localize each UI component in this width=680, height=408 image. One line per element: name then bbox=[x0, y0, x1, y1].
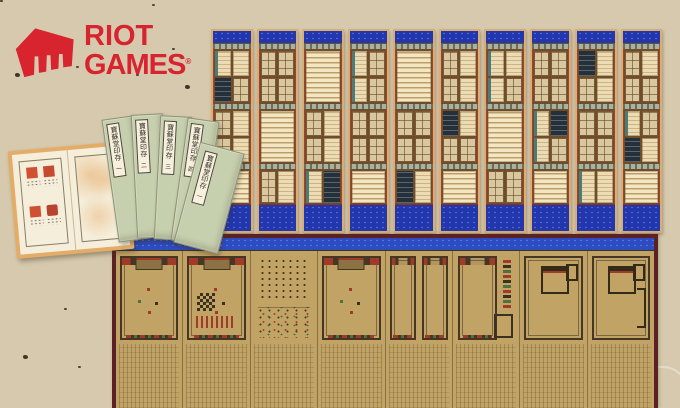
shelf-section bbox=[625, 110, 659, 163]
palace-hall-plan bbox=[322, 256, 380, 340]
book-stack bbox=[233, 51, 249, 76]
screen-panel bbox=[530, 29, 572, 233]
bookshelf bbox=[395, 43, 433, 204]
screen-panel bbox=[439, 29, 481, 233]
bookshelf bbox=[350, 43, 388, 204]
dark-books bbox=[551, 111, 567, 136]
plan-panel bbox=[116, 251, 183, 408]
shelf-valance bbox=[577, 44, 615, 49]
shelf-valance bbox=[532, 164, 570, 169]
shelf-valance bbox=[441, 104, 479, 109]
book-stack bbox=[460, 51, 476, 76]
lattice-door bbox=[460, 138, 476, 163]
shelf-section bbox=[397, 170, 431, 204]
shelf-valance bbox=[395, 164, 433, 169]
title-slip-text: 寶蘇堂印存 bbox=[137, 122, 148, 157]
book-stack bbox=[324, 138, 340, 163]
plan-mark bbox=[349, 288, 352, 291]
shelf-valance bbox=[441, 164, 479, 169]
panel-blue-band-top bbox=[213, 31, 251, 43]
lattice-door bbox=[369, 51, 385, 76]
shelf-valance bbox=[213, 104, 251, 109]
book-stack bbox=[597, 171, 613, 203]
roof-band bbox=[460, 258, 495, 265]
name-list-text bbox=[456, 344, 516, 408]
plan-diagram bbox=[187, 256, 245, 340]
shelf-valance bbox=[577, 164, 615, 169]
book-stack bbox=[233, 111, 249, 136]
plan-mark bbox=[222, 302, 225, 305]
book-pile bbox=[352, 171, 386, 203]
screen-panel bbox=[575, 29, 617, 233]
wall-detail bbox=[637, 288, 646, 327]
plan-mark bbox=[147, 288, 150, 291]
bookshelf bbox=[577, 43, 615, 204]
shelf-section bbox=[306, 50, 340, 103]
bookshelf bbox=[259, 43, 297, 204]
screen-panel bbox=[348, 29, 390, 233]
red-text-rows bbox=[196, 316, 235, 327]
volume-mark: 二 bbox=[141, 160, 147, 169]
shelf-valance bbox=[623, 44, 661, 49]
riot-games-wordmark: RIOT GAMES® bbox=[84, 24, 191, 78]
shelf-valance bbox=[259, 164, 297, 169]
book-pile bbox=[625, 171, 659, 203]
book-stack bbox=[352, 51, 368, 76]
book-stack bbox=[642, 51, 658, 76]
lattice-door bbox=[369, 111, 385, 136]
volume-mark: 三 bbox=[165, 162, 171, 171]
panel-blue-band-bottom bbox=[532, 204, 570, 231]
shelf-section bbox=[261, 110, 295, 163]
panel-blue-band-top bbox=[304, 31, 342, 43]
lattice-door bbox=[443, 78, 459, 103]
lattice-door bbox=[551, 138, 567, 163]
lattice-door bbox=[397, 111, 413, 136]
book-stack bbox=[460, 111, 476, 136]
gate bbox=[338, 257, 365, 270]
book-stack bbox=[597, 51, 613, 76]
shelf-section bbox=[443, 110, 477, 163]
panel-blue-band-top bbox=[350, 31, 388, 43]
plan-mark bbox=[215, 311, 218, 314]
building bbox=[608, 266, 636, 294]
panel-blue-band-bottom bbox=[304, 204, 342, 231]
shelf-valance bbox=[213, 44, 251, 49]
screen-panels bbox=[116, 251, 654, 408]
panel-blue-band-top bbox=[532, 31, 570, 43]
seal-stamp bbox=[43, 201, 64, 241]
plan-panel bbox=[318, 251, 385, 408]
plan-panel bbox=[386, 251, 453, 408]
shelf-section bbox=[397, 110, 431, 163]
courtyard-plan bbox=[524, 256, 582, 340]
lattice-door bbox=[261, 78, 277, 103]
lattice-door bbox=[369, 78, 385, 103]
shelf-section bbox=[261, 50, 295, 103]
name-list-text bbox=[591, 344, 651, 408]
bookshelf bbox=[304, 43, 342, 204]
book-stack bbox=[306, 171, 322, 203]
courtyard-plan bbox=[592, 256, 650, 340]
name-list-text bbox=[321, 344, 381, 408]
book-stack bbox=[215, 51, 231, 76]
name-list-text bbox=[523, 344, 583, 408]
threshold-blocks bbox=[126, 335, 172, 338]
shelf-valance bbox=[577, 104, 615, 109]
shelf-valance bbox=[304, 104, 342, 109]
shelf-section bbox=[579, 50, 613, 103]
screen-panel bbox=[257, 29, 299, 233]
panel-blue-band-bottom bbox=[259, 204, 297, 231]
shelf-valance bbox=[304, 164, 342, 169]
legend-rows bbox=[258, 307, 309, 338]
shelf-valance bbox=[623, 164, 661, 169]
title-slip-text: 寶蘇堂印存 bbox=[197, 154, 215, 190]
shelf-section bbox=[261, 170, 295, 204]
shelf-valance bbox=[623, 104, 661, 109]
seal-grid bbox=[23, 162, 64, 243]
lattice-door bbox=[306, 111, 322, 136]
shelf-valance bbox=[486, 104, 524, 109]
threshold-blocks bbox=[425, 335, 444, 338]
small-plan-square bbox=[494, 314, 513, 338]
registered-mark: ® bbox=[185, 57, 191, 66]
shelf-section bbox=[352, 50, 386, 103]
lattice-door bbox=[443, 138, 459, 163]
lattice-door bbox=[551, 78, 567, 103]
shelf-section bbox=[534, 110, 568, 163]
plan-mark bbox=[148, 311, 151, 314]
lattice-door bbox=[534, 78, 550, 103]
shelf-valance bbox=[441, 44, 479, 49]
annex bbox=[566, 264, 578, 281]
screen-panel bbox=[393, 29, 435, 233]
shelf-valance bbox=[259, 44, 297, 49]
lattice-door bbox=[352, 111, 368, 136]
shelf-section bbox=[352, 110, 386, 163]
lattice-door bbox=[551, 51, 567, 76]
shelf-section bbox=[306, 170, 340, 204]
plan-diagram bbox=[255, 256, 313, 340]
shelf-section bbox=[397, 50, 431, 103]
bookshelf bbox=[623, 43, 661, 204]
logo-word-riot: RIOT bbox=[84, 24, 191, 49]
panel-blue-band-bottom bbox=[577, 204, 615, 231]
plan-diagram bbox=[592, 256, 650, 340]
dark-books bbox=[625, 138, 641, 163]
lattice-door bbox=[597, 111, 613, 136]
threshold-blocks bbox=[194, 335, 240, 338]
book-stack bbox=[642, 138, 658, 163]
book-stack bbox=[506, 51, 522, 76]
lattice-door bbox=[579, 138, 595, 163]
narrow-hall-plan bbox=[390, 256, 416, 340]
stage: RIOT GAMES® 寶蘇堂印存一寶蘇堂印存二寶蘇堂印存三寶蘇堂印存四寶蘇堂印… bbox=[0, 0, 680, 408]
lattice-door bbox=[415, 111, 431, 136]
shelf-section bbox=[352, 170, 386, 204]
title-slip: 寶蘇堂印存一 bbox=[191, 150, 218, 206]
checkerboard bbox=[197, 293, 215, 311]
lattice-door bbox=[278, 78, 294, 103]
screen-panel bbox=[484, 29, 526, 233]
name-list-text bbox=[119, 344, 179, 408]
dark-books bbox=[324, 171, 340, 203]
threshold-blocks bbox=[328, 335, 374, 338]
panel-blue-band-bottom bbox=[350, 204, 388, 231]
palace-hall-plan bbox=[120, 256, 178, 340]
plan-panel bbox=[520, 251, 587, 408]
panel-blue-band-bottom bbox=[441, 204, 479, 231]
palace-plan-screen bbox=[112, 234, 658, 408]
book-stack bbox=[278, 171, 294, 203]
shelf-valance bbox=[350, 44, 388, 49]
title-slip: 寶蘇堂印存一 bbox=[106, 122, 126, 177]
lattice-door bbox=[506, 78, 522, 103]
lattice-door bbox=[534, 51, 550, 76]
annex bbox=[633, 264, 645, 281]
book-pile bbox=[443, 171, 477, 203]
title-slip-text: 寶蘇堂印存 bbox=[109, 126, 123, 162]
lattice-door bbox=[352, 138, 368, 163]
shelf-section bbox=[579, 110, 613, 163]
lattice-door bbox=[579, 111, 595, 136]
screen-panel bbox=[302, 29, 344, 233]
volume-mark: 一 bbox=[115, 164, 122, 174]
lattice-door bbox=[443, 51, 459, 76]
shelf-section bbox=[534, 170, 568, 204]
narrow-hall-plan bbox=[422, 256, 448, 340]
shelf-section bbox=[488, 170, 522, 204]
lattice-door bbox=[415, 138, 431, 163]
plan-mark bbox=[340, 300, 343, 303]
shelf-valance bbox=[395, 44, 433, 49]
paper-speckles bbox=[0, 0, 3, 2]
book-pile bbox=[306, 51, 340, 102]
building bbox=[541, 266, 569, 294]
threshold-blocks bbox=[393, 335, 412, 338]
lattice-door bbox=[642, 111, 658, 136]
lattice-door bbox=[642, 78, 658, 103]
gate bbox=[136, 257, 163, 270]
plan-mark bbox=[155, 302, 158, 305]
screen-panel bbox=[621, 29, 663, 233]
page-frame bbox=[18, 158, 68, 247]
plan-mark bbox=[138, 300, 141, 303]
seal-stamp bbox=[40, 162, 61, 202]
name-list-text bbox=[186, 344, 246, 408]
plan-diagram bbox=[390, 256, 448, 340]
dark-books bbox=[397, 171, 413, 203]
chaekgeori-screen bbox=[211, 29, 662, 233]
book-stack bbox=[579, 171, 595, 203]
book-stack bbox=[324, 111, 340, 136]
lattice-door bbox=[625, 78, 641, 103]
lattice-door bbox=[306, 138, 322, 163]
lattice-door bbox=[278, 51, 294, 76]
hall-pair bbox=[390, 256, 448, 340]
lattice-door bbox=[506, 171, 522, 203]
panel-blue-band-top bbox=[441, 31, 479, 43]
shelf-valance bbox=[532, 104, 570, 109]
panel-blue-band-top bbox=[577, 31, 615, 43]
riot-games-logo: RIOT GAMES® bbox=[14, 24, 191, 82]
title-slip: 寶蘇堂印存二 bbox=[135, 119, 151, 174]
shelf-valance bbox=[259, 104, 297, 109]
plan-diagram bbox=[322, 256, 380, 340]
lattice-door bbox=[579, 78, 595, 103]
palace-hall-plan bbox=[187, 256, 245, 340]
shelf-valance bbox=[486, 164, 524, 169]
book-stack bbox=[625, 111, 641, 136]
shelf-section bbox=[488, 50, 522, 103]
roof-band bbox=[392, 258, 414, 265]
shelf-valance bbox=[486, 44, 524, 49]
narrow-hall-plan bbox=[458, 256, 497, 340]
title-slip: 寶蘇堂印存三 bbox=[161, 120, 177, 175]
plan-mark bbox=[214, 288, 217, 291]
panel-blue-band-top bbox=[486, 31, 524, 43]
shelf-section bbox=[215, 50, 249, 103]
shelf-section bbox=[306, 110, 340, 163]
lattice-door bbox=[397, 138, 413, 163]
book-stack bbox=[534, 111, 550, 136]
book-stack bbox=[534, 138, 550, 163]
shelf-section bbox=[488, 110, 522, 163]
gate bbox=[203, 257, 230, 270]
panel-blue-band-bottom bbox=[623, 204, 661, 231]
plan-panel bbox=[183, 251, 250, 408]
shelf-section bbox=[443, 50, 477, 103]
dark-books bbox=[215, 78, 231, 103]
panel-blue-band-top bbox=[623, 31, 661, 43]
shelf-section bbox=[534, 50, 568, 103]
book-stack bbox=[597, 78, 613, 103]
panel-blue-band-top bbox=[395, 31, 433, 43]
shelf-valance bbox=[350, 104, 388, 109]
book-pile bbox=[488, 111, 522, 162]
shelf-section bbox=[625, 50, 659, 103]
riot-fist-icon bbox=[14, 26, 76, 82]
dark-books bbox=[443, 111, 459, 136]
threshold-blocks bbox=[463, 335, 492, 338]
dark-books bbox=[579, 51, 595, 76]
plan-diagram bbox=[457, 256, 515, 340]
bookshelf bbox=[532, 43, 570, 204]
shelf-section bbox=[579, 170, 613, 204]
shelf-valance bbox=[532, 44, 570, 49]
figure-grid bbox=[259, 258, 308, 302]
plan-panel bbox=[251, 251, 318, 408]
book-stack bbox=[488, 51, 504, 76]
seal-book-left-page bbox=[12, 150, 76, 254]
shelf-section bbox=[625, 170, 659, 204]
bookshelf bbox=[441, 43, 479, 204]
lattice-door bbox=[261, 171, 277, 203]
name-list-text bbox=[254, 344, 314, 408]
lattice-door bbox=[369, 138, 385, 163]
plan-panel bbox=[453, 251, 520, 408]
title-slip-text: 寶蘇堂印存 bbox=[164, 124, 175, 159]
lattice-door bbox=[597, 138, 613, 163]
bookshelf bbox=[486, 43, 524, 204]
panel-blue-band-top bbox=[259, 31, 297, 43]
book-stack bbox=[488, 78, 504, 103]
book-stack bbox=[415, 171, 431, 203]
book-stack bbox=[352, 78, 368, 103]
name-list-text bbox=[389, 344, 449, 408]
plan-mark bbox=[357, 302, 360, 305]
plan-diagram bbox=[120, 256, 178, 340]
book-pile bbox=[534, 171, 568, 203]
plan-diagram bbox=[524, 256, 582, 340]
shelf-section bbox=[443, 170, 477, 204]
lattice-door bbox=[261, 51, 277, 76]
lattice-door bbox=[625, 51, 641, 76]
panel-blue-band-bottom bbox=[486, 204, 524, 231]
shelf-valance bbox=[395, 104, 433, 109]
plan-mark bbox=[350, 311, 353, 314]
shelf-valance bbox=[350, 164, 388, 169]
volume-mark: 一 bbox=[196, 191, 204, 201]
book-pile bbox=[397, 51, 431, 102]
shelf-valance bbox=[304, 44, 342, 49]
book-pile bbox=[261, 111, 295, 162]
roof-band bbox=[424, 258, 446, 265]
logo-word-games: GAMES® bbox=[84, 49, 191, 78]
plan-panel bbox=[588, 251, 654, 408]
lattice-door bbox=[233, 78, 249, 103]
panel-blue-band-bottom bbox=[395, 204, 433, 231]
figure-column bbox=[503, 259, 511, 308]
lattice-door bbox=[488, 171, 504, 203]
book-stack bbox=[460, 78, 476, 103]
